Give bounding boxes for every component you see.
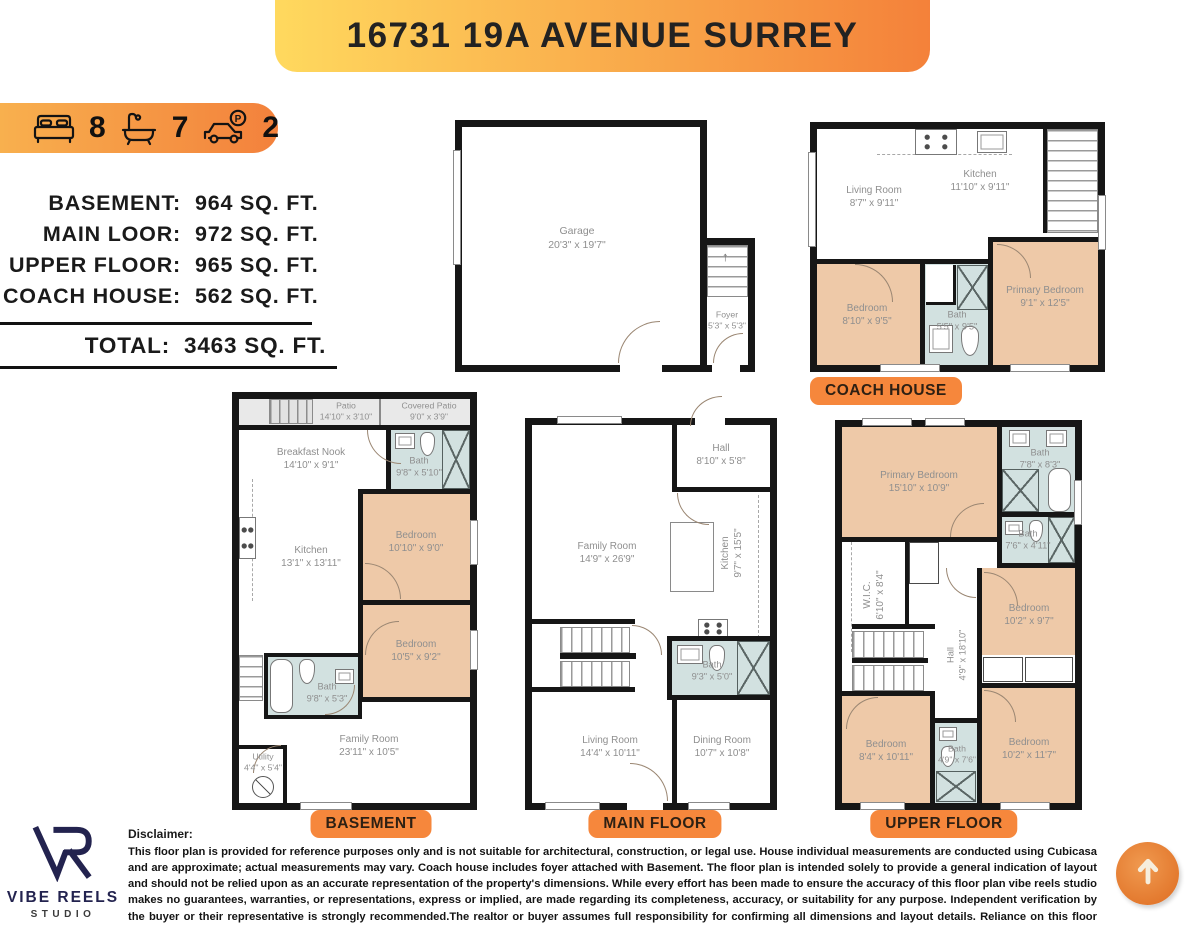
stove-icon [915,129,957,155]
room-label: Bath 5'5" x 9'5" [937,309,978,334]
tub-icon [270,659,293,713]
room-label: Living Room 14'4" x 10'11" [580,734,640,760]
garage-floor-plan: Garage 20'3" x 19'7" [455,120,707,372]
tub-icon [1048,468,1071,512]
door-arc [632,625,662,655]
window [300,802,352,810]
wall [358,489,363,605]
logo-brand-text: VIBE REELS [6,889,120,907]
shower-icon [957,265,988,310]
window [860,802,905,810]
room-label: Kitchen 11'10" x 9'11" [951,168,1010,194]
kitchen-island [670,522,714,592]
window [1000,802,1050,810]
room-label: Bedroom 10'10" x 9'0" [389,529,444,555]
foyer-plan: ↑ Foyer 5'3" x 5'3" [700,238,755,372]
wall [982,683,1075,688]
window [470,630,478,670]
room-label: Patio 14'10" x 3'10" [320,401,372,424]
shower-icon [1048,517,1075,563]
divider [0,366,337,369]
closet [909,542,939,584]
wall [920,264,925,365]
closet [1025,657,1073,682]
kitchen-counter [758,495,770,653]
room-label: Family Room 14'9" x 26'9" [578,540,637,566]
north-arrow-badge [1116,842,1179,905]
area-row-basement: BASEMENT:964 SQ. FT. [0,188,330,219]
disclaimer-body: This floor plan is provided for referenc… [128,844,1097,927]
area-row-upper: UPPER FLOOR:965 SQ. FT. [0,250,330,281]
stair-rail [852,658,928,663]
wall [817,259,993,264]
window [1074,480,1082,525]
room-label: Utility 4'4" x 5'4" [244,752,282,775]
upper-floor-plan: Primary Bedroom 15'10" x 10'9" Bath 7'8"… [835,420,1082,810]
room-label: Bedroom 8'4" x 10'11" [859,738,913,764]
door-opening [620,364,662,372]
total-label: TOTAL: [0,330,170,362]
closet [926,265,956,305]
room-label: W.I.C. 6'10" x 8'4" [861,570,887,619]
door-arc [946,568,976,598]
wall [1043,129,1047,233]
divider [0,322,312,325]
door-opening [627,802,663,810]
room-label-foyer: Foyer 5'3" x 5'3" [708,310,746,333]
wall [532,687,635,692]
wall [379,399,381,425]
room-label: Breakfast Nook 14'10" x 9'1" [277,446,345,472]
up-arrow-icon [1128,851,1168,896]
sink-icon [1009,430,1030,447]
stair-rail [560,653,636,659]
room-label: Bath 4'9" x 7'6" [938,744,976,767]
parking-count: 2 [262,111,279,145]
room-label: Kitchen 9'7" x 15'5" [719,528,745,577]
room-label: Bath 9'8" x 5'3" [307,681,348,706]
wall [993,237,1098,242]
sink-icon [977,131,1007,153]
stairs [852,665,924,691]
area-total-row: TOTAL: 3463 SQ. FT. [0,330,332,362]
stairs [239,655,263,701]
room-label: Bath 9'8" x 5'10" [396,455,442,480]
window [862,418,912,426]
wall [842,691,935,696]
room-label: Family Room 23'11" x 10'5" [339,733,399,759]
title-banner: 16731 19A AVENUE SURREY [275,0,930,72]
wall [988,237,993,365]
window [925,418,965,426]
bed-icon [32,110,76,146]
room-label: Bedroom 8'10" x 9'5" [842,302,891,328]
door-opening [712,364,740,372]
room-label: Hall 8'10" x 5'8" [696,442,745,468]
stairs [269,399,313,424]
wall [667,636,672,695]
room-label: Dining Room 10'7" x 10'8" [693,734,751,760]
wall [672,487,770,492]
bed-count: 8 [89,111,106,145]
disclaimer-heading: Disclaimer: [128,827,1097,841]
parking-icon: P [201,108,249,148]
window [688,802,730,810]
stairs-up-arrow: ↑ [722,249,729,264]
wall [667,636,770,641]
svg-text:P: P [235,114,242,125]
wall [358,697,470,702]
window [557,416,622,424]
closet-shelf [842,542,852,652]
door-arc [630,763,668,801]
shower-icon [1002,469,1039,512]
logo-sub-text: STUDIO [6,909,120,920]
stairs [1047,129,1098,233]
disclaimer: Disclaimer: This floor plan is provided … [128,827,1097,927]
window [880,364,940,372]
bath-icon [119,109,159,147]
wall [930,691,935,803]
room-label-garage: Garage 20'3" x 19'7" [548,225,606,253]
window [545,802,600,810]
fan-icon [252,776,274,798]
room-label: Covered Patio 9'0" x 3'9" [401,401,456,424]
area-row-coach: COACH HOUSE:562 SQ. FT. [0,281,330,312]
room-label: Bath 7'6" x 4'11" [1005,528,1050,553]
page-title: 16731 19A AVENUE SURREY [347,16,859,56]
door-arc [618,321,660,363]
wall [672,425,677,492]
area-row-main: MAIN LOOR:972 SQ. FT. [0,219,330,250]
door-arc [677,493,709,525]
wall [672,700,677,803]
vibe-reels-logo: VIBE REELS STUDIO [6,824,120,920]
stats-pill: 8 7 P 2 [0,103,278,153]
shower-icon [442,430,470,489]
logo-mark-icon [30,869,96,886]
shower-icon [936,771,976,802]
room-label: Living Room 8'7" x 9'11" [846,184,902,210]
door-opening [695,417,725,426]
basement-floor-plan: Patio 14'10" x 3'10" Covered Patio 9'0" … [232,392,477,810]
room-label: Hall 4'9" x 18'10" [945,630,970,681]
room-label: Bedroom 10'5" x 9'2" [391,638,440,664]
coach-house-floor-plan: Living Room 8'7" x 9'11" Kitchen 11'10" … [810,122,1105,372]
wall [842,624,935,629]
floor-plan-flyer: 16731 19A AVENUE SURREY 8 7 P 2 BASEMENT… [0,0,1200,927]
stairs [852,631,924,658]
bath-count: 7 [172,111,189,145]
wall [935,718,982,723]
sink-icon [939,727,957,741]
window [1098,195,1106,250]
window [1010,364,1070,372]
total-value: 3463 SQ. FT. [184,330,332,362]
shower-icon [737,641,770,695]
room-label: Bedroom 10'2" x 9'7" [1004,602,1053,628]
door-arc [713,333,743,363]
area-summary: BASEMENT:964 SQ. FT. MAIN LOOR:972 SQ. F… [0,188,330,312]
room-label: Bedroom 10'2" x 11'7" [1002,736,1056,762]
stairs [560,661,630,687]
room-label: Primary Bedroom 15'10" x 10'9" [880,469,958,495]
coach-house-label: COACH HOUSE [810,377,962,405]
room-label: Primary Bedroom 9'1" x 12'5" [1006,284,1084,310]
window [453,150,461,265]
window [808,152,816,247]
sink-icon [1046,430,1067,447]
stove-icon [239,517,256,559]
room-label: Kitchen 13'1" x 13'11" [281,544,341,570]
main-floor-plan: Hall 8'10" x 5'8" Family Room 14'9" x 26… [525,418,777,810]
stairs [560,627,630,653]
window [470,520,478,565]
wall [997,563,1075,568]
wall [532,619,635,624]
closet [983,657,1023,682]
room-label: Bath 9'3" x 5'0" [692,659,733,684]
room-label: Bath 7'8" x 8'3" [1020,447,1061,472]
wall [667,695,770,700]
